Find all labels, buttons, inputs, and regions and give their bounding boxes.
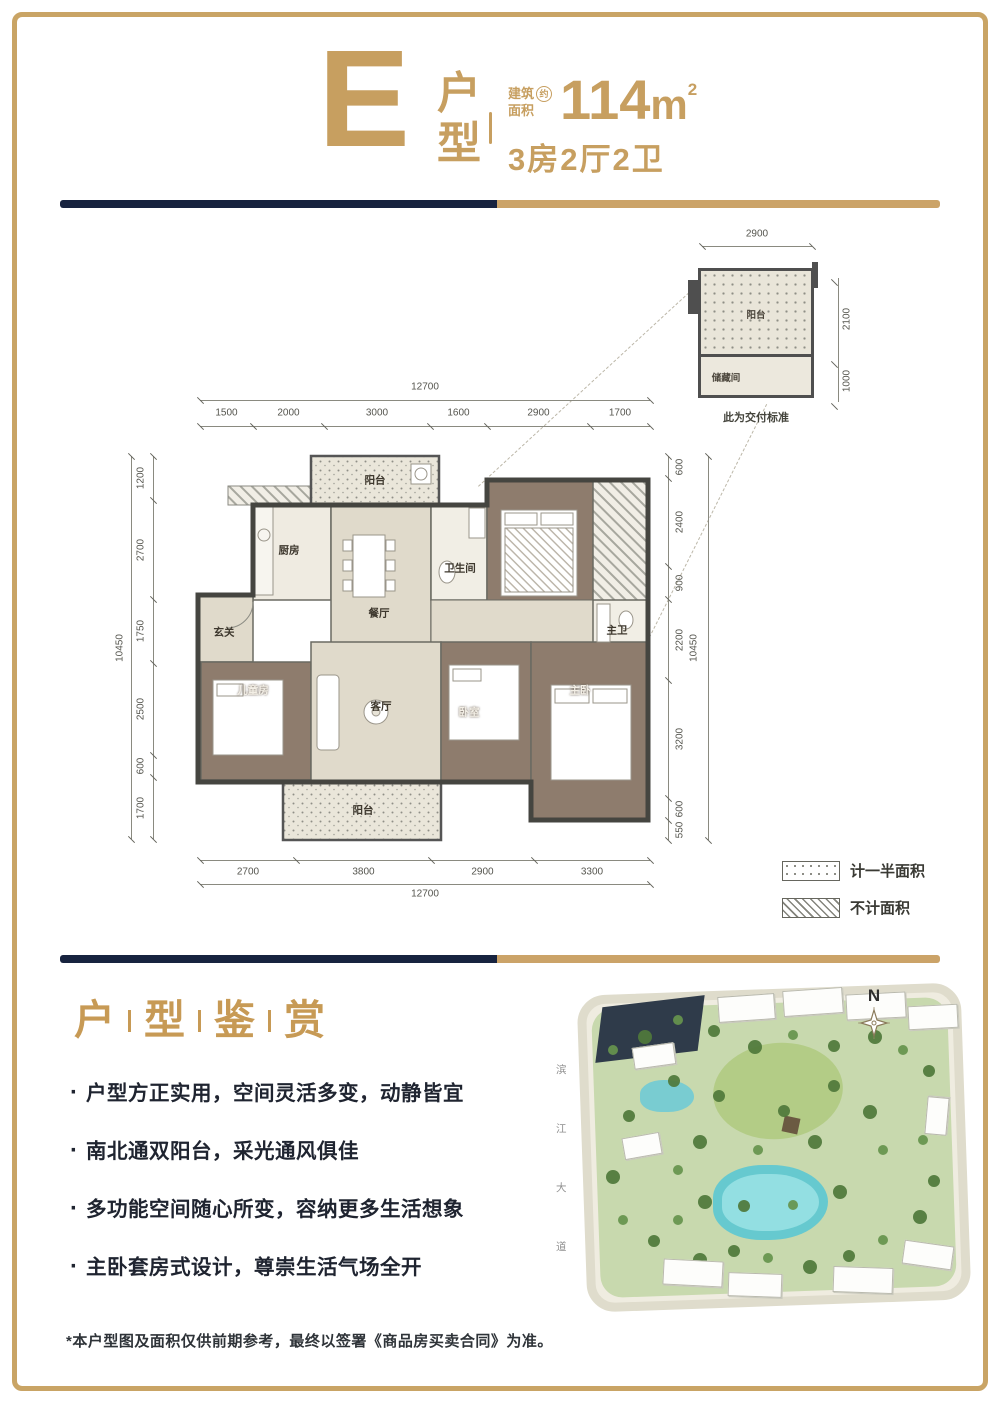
dim-label: 600 <box>136 758 147 775</box>
title-char: 户 <box>74 1000 115 1041</box>
unit-letter: E <box>318 30 410 168</box>
dim-label: 12700 <box>411 889 439 900</box>
dim-label: 2700 <box>136 538 147 560</box>
detail-balcony-label: 阳台 <box>746 307 765 321</box>
dim-label: 3300 <box>581 867 603 878</box>
tree <box>738 1200 750 1212</box>
building <box>728 1272 783 1298</box>
dim-line <box>131 456 132 839</box>
detail-dim-storage-depth: 1000 <box>842 370 853 392</box>
dim-label: 1700 <box>609 408 631 419</box>
compass-rose-icon <box>857 1006 891 1040</box>
tree <box>843 1250 855 1262</box>
detail-dim-width: 2900 <box>746 229 768 240</box>
unit-type-label: 户 型 <box>437 72 481 166</box>
road-name-vertical: 滨 江 大 道 <box>556 1062 567 1254</box>
divider-gold-segment <box>497 200 940 208</box>
legend-item-excluded-area: 不计面积 <box>782 897 925 918</box>
dim-label: 3000 <box>366 408 388 419</box>
bullet-text: 南北通双阳台，采光通风俱佳 <box>86 1138 359 1165</box>
detail-dim-balcony-depth: 2100 <box>842 308 853 330</box>
pool-inner <box>722 1174 819 1231</box>
building <box>924 1096 949 1136</box>
road-char: 滨 <box>556 1062 567 1077</box>
tree <box>753 1145 763 1155</box>
dim-label: 12700 <box>411 382 439 393</box>
building <box>907 1004 958 1031</box>
dim-line <box>153 456 154 839</box>
tree <box>728 1245 740 1257</box>
floor-plan-poster: E 户 型 建筑 约 面积 114 m 2 3房2厅2卫 <box>0 0 1000 1403</box>
road-char: 道 <box>556 1239 567 1254</box>
title-char: 型 <box>144 1000 185 1041</box>
dim-label: 900 <box>675 574 686 591</box>
road-char: 江 <box>556 1121 567 1136</box>
tree <box>923 1065 935 1077</box>
tree <box>833 1185 847 1199</box>
dim-label: 2500 <box>136 698 147 720</box>
dim-line <box>668 456 669 840</box>
dim-label: 2700 <box>237 867 259 878</box>
title-separator <box>268 1010 271 1032</box>
excluded-area-swatch <box>782 898 840 918</box>
room-layout-text: 3房2厅2卫 <box>508 134 697 179</box>
appreciation-title: 户 型 鉴 赏 <box>74 1000 325 1041</box>
dim-line <box>708 456 709 840</box>
building <box>833 1266 894 1294</box>
area-value: 114 <box>560 72 650 128</box>
dim-label: 10450 <box>115 634 126 662</box>
bullet-dot: · <box>70 1254 78 1280</box>
circled-approx: 约 <box>536 86 552 102</box>
dim-label: 600 <box>675 801 686 818</box>
dim-tick <box>831 403 838 410</box>
room-label-dining: 餐厅 <box>369 606 390 621</box>
tree <box>673 1015 683 1025</box>
tree <box>748 1040 762 1054</box>
tree <box>913 1210 927 1224</box>
detail-wall-block <box>812 262 818 288</box>
tree <box>673 1165 683 1175</box>
dim-label: 550 <box>675 822 686 839</box>
tree <box>863 1105 877 1119</box>
feature-bullet-2: · 南北通双阳台，采光通风俱佳 <box>70 1138 540 1165</box>
floor-plan-drawing <box>183 450 653 850</box>
area-exponent: 2 <box>688 80 697 100</box>
dim-label: 1700 <box>136 797 147 819</box>
building <box>717 993 776 1023</box>
dim-label: 2900 <box>471 867 493 878</box>
bullet-dot: · <box>70 1080 78 1106</box>
tree <box>648 1235 660 1247</box>
tree <box>878 1235 888 1245</box>
dim-label: 1500 <box>215 408 237 419</box>
tree <box>618 1215 628 1225</box>
tree <box>808 1135 822 1149</box>
tree <box>623 1110 635 1122</box>
bullet-dot: · <box>70 1196 78 1222</box>
feature-bullets: · 户型方正实用，空间灵活多变，动静皆宜 · 南北通双阳台，采光通风俱佳 · 多… <box>70 1080 540 1312</box>
dim-label: 2900 <box>527 408 549 419</box>
dim-label: 2400 <box>675 511 686 533</box>
header-divider-line <box>489 112 492 144</box>
room-label-master-bathroom: 主卫 <box>607 623 628 638</box>
unit-char-hu: 户 <box>437 72 481 116</box>
dim-tick <box>831 361 838 368</box>
tree <box>606 1170 620 1184</box>
dim-line <box>200 426 650 427</box>
tree <box>698 1195 712 1209</box>
dim-label: 600 <box>675 459 686 476</box>
dim-tick <box>831 279 838 286</box>
dim-line <box>200 884 650 885</box>
detail-wall-block <box>688 280 698 314</box>
connector-dash-line-2 <box>640 404 767 655</box>
site-plan <box>578 985 970 1310</box>
detail-dim-line-top <box>702 246 812 247</box>
detail-caption: 此为交付标准 <box>723 409 789 425</box>
title-char: 赏 <box>284 1000 325 1041</box>
building <box>662 1258 723 1287</box>
tree <box>788 1200 798 1210</box>
building <box>782 987 844 1017</box>
area-prefix: 建筑 约 面积 <box>508 86 552 120</box>
dim-label: 2200 <box>675 628 686 650</box>
area-info: 建筑 约 面积 114 m 2 3房2厅2卫 <box>508 72 697 179</box>
feature-bullet-1: · 户型方正实用，空间灵活多变，动静皆宜 <box>70 1080 540 1107</box>
dim-label: 1750 <box>136 620 147 642</box>
half-area-swatch <box>782 861 840 881</box>
north-label: N <box>852 986 896 1006</box>
area-prefix-bottom: 面积 <box>508 103 552 120</box>
dim-label: 3200 <box>675 728 686 750</box>
area-prefix-top: 建筑 <box>508 86 534 103</box>
divider-navy-segment <box>60 200 497 208</box>
dim-label: 10450 <box>689 634 700 662</box>
dim-line <box>200 400 650 401</box>
divider-bar-top <box>60 200 940 208</box>
tree <box>828 1080 840 1092</box>
legend-label: 计一半面积 <box>850 860 925 881</box>
room-label-north-balcony: 阳台 <box>365 473 386 488</box>
detail-dim-line-right <box>838 278 839 402</box>
detail-storage-label: 储藏间 <box>712 370 741 384</box>
tree <box>918 1135 928 1145</box>
bullet-text: 多功能空间随心所变，容纳更多生活想象 <box>86 1196 464 1223</box>
feature-bullet-4: · 主卧套房式设计，尊崇生活气场全开 <box>70 1254 540 1281</box>
tree <box>608 1045 618 1055</box>
room-label-bathroom: 卫生间 <box>444 561 476 576</box>
divider-bar-bottom <box>60 955 940 963</box>
title-char: 鉴 <box>214 1000 255 1041</box>
tree <box>638 1030 652 1044</box>
tree <box>878 1145 888 1155</box>
unit-char-xing: 型 <box>437 122 481 166</box>
room-label-master-bedroom: 主卧 <box>570 683 591 698</box>
room-label-kitchen: 厨房 <box>279 543 300 558</box>
north-compass: N <box>852 986 896 1045</box>
bullet-dot: · <box>70 1138 78 1164</box>
tree <box>763 1253 773 1263</box>
divider-gold-segment <box>497 955 940 963</box>
title-separator <box>128 1010 131 1032</box>
tree <box>928 1175 940 1187</box>
title-separator <box>198 1010 201 1032</box>
tree <box>673 1215 683 1225</box>
tree <box>668 1075 680 1087</box>
dim-label: 3800 <box>352 867 374 878</box>
legend-label: 不计面积 <box>850 897 910 918</box>
pond <box>640 1080 694 1112</box>
divider-navy-segment <box>60 955 497 963</box>
bullet-text: 户型方正实用，空间灵活多变，动静皆宜 <box>86 1080 464 1107</box>
dim-line <box>200 860 650 861</box>
tree <box>788 1030 798 1040</box>
floor-plan: 阳台 厨房 餐厅 卫生间 玄关 儿童房 客厅 卧室 主卧 主卫 阳台 <box>183 450 653 850</box>
tree <box>693 1135 707 1149</box>
legend-item-half-area: 计一半面积 <box>782 860 925 881</box>
room-label-kids-room: 儿童房 <box>237 683 269 698</box>
dim-label: 2000 <box>277 408 299 419</box>
area-unit: m <box>650 84 687 126</box>
tree <box>713 1090 725 1102</box>
tree <box>898 1045 908 1055</box>
room-label-south-balcony: 阳台 <box>353 803 374 818</box>
legend: 计一半面积 不计面积 <box>782 860 925 918</box>
room-label-bedroom: 卧室 <box>459 705 480 720</box>
road-char: 大 <box>556 1180 567 1195</box>
disclaimer-text: *本户型图及面积仅供前期参考，最终以签署《商品房买卖合同》为准。 <box>66 1330 553 1351</box>
tree <box>828 1040 840 1052</box>
dim-label: 1200 <box>136 467 147 489</box>
dim-label: 1600 <box>447 408 469 419</box>
swimming-pool <box>713 1165 828 1240</box>
tree <box>803 1260 817 1274</box>
feature-bullet-3: · 多功能空间随心所变，容纳更多生活想象 <box>70 1196 540 1223</box>
pavilion <box>782 1116 801 1135</box>
room-label-living: 客厅 <box>371 699 392 714</box>
bullet-text: 主卧套房式设计，尊崇生活气场全开 <box>86 1254 422 1281</box>
room-label-foyer: 玄关 <box>214 625 235 640</box>
tree <box>708 1025 720 1037</box>
tree <box>778 1105 790 1117</box>
